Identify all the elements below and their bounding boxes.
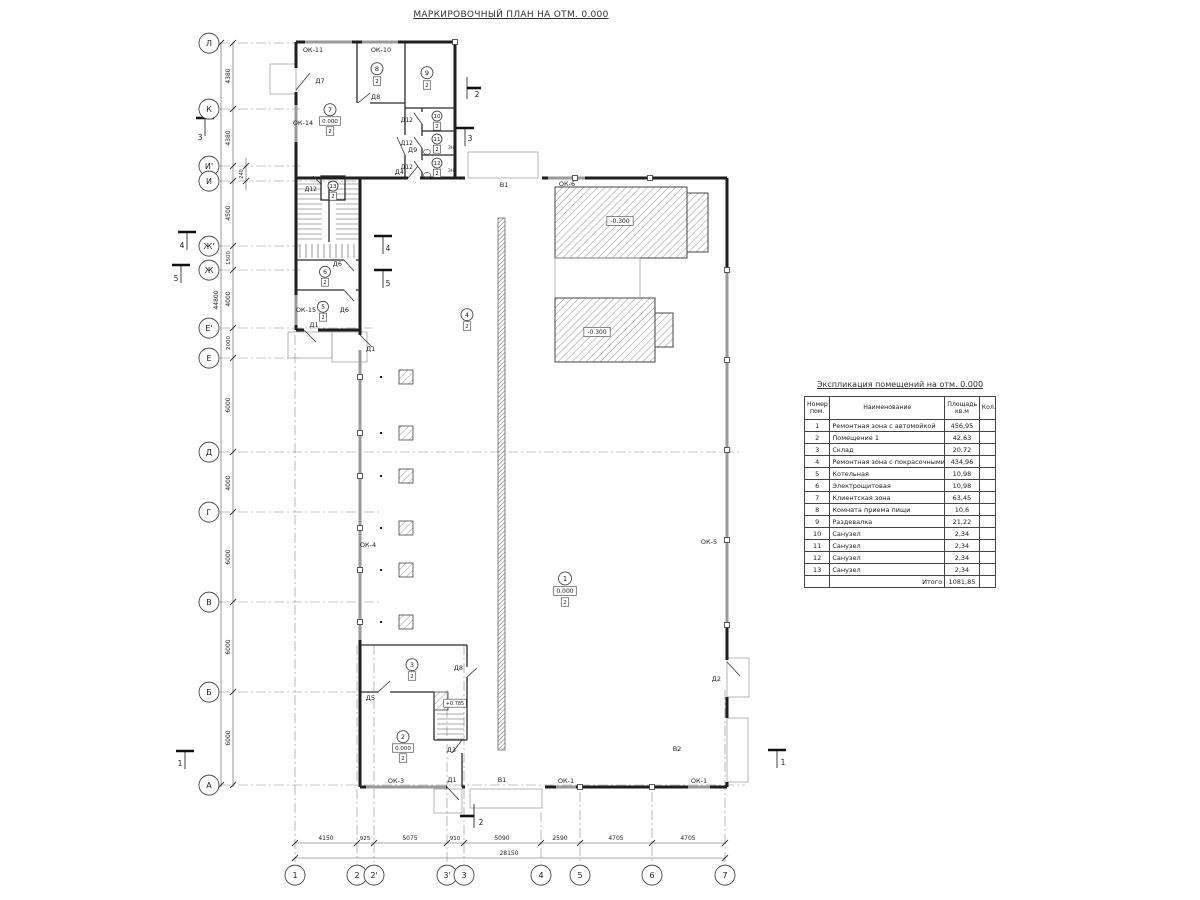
svg-text:8: 8 xyxy=(375,65,379,73)
svg-text:3: 3 xyxy=(468,134,473,143)
svg-text:3: 3 xyxy=(461,871,466,880)
dim-left: 4380 xyxy=(225,130,232,145)
room-name: Ремонтная зона с автомойкой xyxy=(830,420,945,432)
svg-text:5: 5 xyxy=(321,304,325,311)
svg-text:4: 4 xyxy=(386,244,391,253)
floor-plan-drawing: 122'3'34567ЛКИ'ИЖ'ЖЕ'ЕДГВБА4150925507591… xyxy=(0,0,1200,900)
dim-bottom: 4705 xyxy=(680,835,695,842)
window-label: ОК-1 xyxy=(558,777,574,785)
svg-text:Д8: Д8 xyxy=(454,664,463,672)
room-number: 2 xyxy=(805,432,830,444)
elevation-mark: -0.300 xyxy=(607,216,633,225)
svg-text:2: 2 xyxy=(323,280,326,286)
svg-text:5: 5 xyxy=(577,871,582,880)
section-flag-4: 4 xyxy=(180,241,185,250)
finish-tag: 2 xyxy=(433,145,440,153)
elevation-mark: 0.000 xyxy=(554,586,577,595)
dim-bottom: 925 xyxy=(360,836,371,842)
gate-label: В1 xyxy=(500,181,509,189)
svg-text:В1: В1 xyxy=(498,776,507,784)
room-number: 10 xyxy=(805,528,830,540)
svg-text:7: 7 xyxy=(328,106,332,114)
svg-text:Д: Д xyxy=(206,448,212,457)
svg-text:Д1: Д1 xyxy=(447,776,456,784)
svg-text:И': И' xyxy=(205,162,213,171)
svg-text:6: 6 xyxy=(649,871,654,880)
finish-tag: 2 xyxy=(408,672,415,681)
finish-tag: 2 xyxy=(326,127,333,135)
finish-tag: 2 xyxy=(423,81,430,90)
door-label: Д12 xyxy=(401,164,414,171)
room-qty xyxy=(979,552,995,564)
svg-text:2: 2 xyxy=(331,194,334,200)
axis-bubble-Zh: Ж xyxy=(199,260,219,280)
svg-text:2: 2 xyxy=(435,147,438,153)
room-qty xyxy=(979,528,995,540)
room-qty xyxy=(979,492,995,504)
schedule-header-row: Номерпом. Наименование Площадькв.м Кол. xyxy=(805,397,996,420)
svg-text:ОК-10: ОК-10 xyxy=(371,46,391,54)
svg-text:В1: В1 xyxy=(500,181,509,189)
svg-text:4705: 4705 xyxy=(608,835,623,842)
axis-bubble-5: 5 xyxy=(570,865,590,885)
room-qty xyxy=(979,420,995,432)
room-area: 10,98 xyxy=(945,480,980,492)
svg-text:Д12: Д12 xyxy=(401,164,414,171)
svg-text:0.000: 0.000 xyxy=(556,588,573,595)
svg-text:2: 2 xyxy=(354,871,359,880)
svg-text:1: 1 xyxy=(781,758,786,767)
vent-mark: ЗН xyxy=(448,168,454,174)
room-area: 10,6 xyxy=(945,504,980,516)
room-marker-3: 3 xyxy=(406,659,418,671)
room-number: 8 xyxy=(805,504,830,516)
svg-text:4500: 4500 xyxy=(225,205,232,220)
room-qty xyxy=(979,564,995,576)
dim-left: 4000 xyxy=(225,291,232,306)
dim-bottom: 4150 xyxy=(318,835,333,842)
svg-text:2: 2 xyxy=(425,83,429,89)
room-name: Раздевалка xyxy=(830,516,945,528)
elevation-mark: -0.300 xyxy=(584,327,610,336)
svg-text:Д12: Д12 xyxy=(401,140,414,147)
window-label: ОК-15 xyxy=(296,306,316,314)
room-marker-10: 10 xyxy=(432,111,442,121)
svg-text:0.000: 0.000 xyxy=(322,119,338,125)
svg-text:-0.300: -0.300 xyxy=(587,329,607,336)
room-area: 10,98 xyxy=(945,468,980,480)
room-area: 2,34 xyxy=(945,564,980,576)
axis-bubble-A: А xyxy=(199,775,219,795)
svg-text:ОК-1: ОК-1 xyxy=(691,777,707,785)
schedule-title: Экспликация помещений на отм. 0.000 xyxy=(804,380,996,389)
plan-labels: 122'3'34567ЛКИ'ИЖ'ЖЕ'ЕДГВБА4150925507591… xyxy=(174,33,786,885)
svg-text:Д6: Д6 xyxy=(340,306,349,314)
room-name: Помещение 1 xyxy=(830,432,945,444)
svg-text:4705: 4705 xyxy=(680,835,695,842)
total-value: 1081,85 xyxy=(945,576,980,588)
axis-bubble-K: К xyxy=(199,99,219,119)
elevation-mark: 0.000 xyxy=(319,117,340,126)
svg-text:В: В xyxy=(206,598,212,607)
svg-text:4150: 4150 xyxy=(318,835,333,842)
door-label: Д8 xyxy=(454,664,463,672)
room-area: 20,72 xyxy=(945,444,980,456)
svg-text:Ж: Ж xyxy=(205,266,214,275)
schedule-row: 7 Клиентская зона 63,45 xyxy=(805,492,996,504)
svg-text:Д9: Д9 xyxy=(408,146,417,154)
door-label: Д1 xyxy=(366,345,375,353)
window-label: ОК-14 xyxy=(293,119,313,127)
svg-text:-0.300: -0.300 xyxy=(610,218,630,225)
door-label: Д7 xyxy=(315,77,324,85)
col-header-qty: Кол. xyxy=(979,397,995,420)
schedule-row: 4 Ремонтная зона с покрасочными камерами… xyxy=(805,456,996,468)
room-qty xyxy=(979,432,995,444)
axis-bubble-I: И xyxy=(199,171,219,191)
svg-text:Д12: Д12 xyxy=(305,186,318,193)
svg-text:ОК-14: ОК-14 xyxy=(293,119,313,127)
room-qty xyxy=(979,444,995,456)
schedule-table: Номерпом. Наименование Площадькв.м Кол. … xyxy=(804,396,996,588)
svg-text:3: 3 xyxy=(198,133,203,142)
hatched-partition xyxy=(498,218,505,750)
room-marker-6: 6 xyxy=(320,266,331,277)
room-number: 5 xyxy=(805,468,830,480)
elevation-mark: 0.000 xyxy=(392,744,413,753)
svg-text:10: 10 xyxy=(434,114,441,120)
svg-text:5075: 5075 xyxy=(402,835,417,842)
svg-text:2: 2 xyxy=(375,79,379,85)
svg-text:1: 1 xyxy=(292,871,297,880)
room-area: 2,34 xyxy=(945,540,980,552)
axis-bubble-B: Б xyxy=(199,682,219,702)
svg-text:6000: 6000 xyxy=(225,730,232,745)
svg-text:Л: Л xyxy=(206,39,212,48)
room-name: Санузел xyxy=(830,552,945,564)
finish-tag: 2 xyxy=(463,322,470,331)
room-number: 3 xyxy=(805,444,830,456)
window-label: ОК-5 xyxy=(701,538,717,546)
finish-tag: 2 xyxy=(321,278,328,286)
svg-text:Д5: Д5 xyxy=(366,694,375,702)
svg-text:5090: 5090 xyxy=(494,835,509,842)
room-qty xyxy=(979,540,995,552)
dim-left: 6000 xyxy=(225,397,232,412)
room-marker-1: 1 xyxy=(559,572,572,585)
svg-text:К: К xyxy=(206,105,212,114)
svg-text:Д6: Д6 xyxy=(333,260,342,268)
section-flag-2: 2 xyxy=(479,818,484,827)
door-label: Д6 xyxy=(340,306,349,314)
col-header-area: Площадькв.м xyxy=(945,397,980,420)
dim-bottom: 5090 xyxy=(494,835,509,842)
window-label: ОК-10 xyxy=(371,46,391,54)
svg-text:4000: 4000 xyxy=(225,475,232,490)
room-area: 434,96 xyxy=(945,456,980,468)
section-flag-1: 1 xyxy=(178,759,183,768)
room-area: 42,63 xyxy=(945,432,980,444)
room-qty xyxy=(979,516,995,528)
schedule-row: 9 Раздевалка 21,22 xyxy=(805,516,996,528)
door-label: Д6 xyxy=(333,260,342,268)
room-number: 9 xyxy=(805,516,830,528)
room-number: 7 xyxy=(805,492,830,504)
door-leaves xyxy=(296,73,740,800)
svg-text:Д7: Д7 xyxy=(315,77,324,85)
room-schedule: Экспликация помещений на отм. 0.000 Номе… xyxy=(804,380,996,588)
svg-text:Д2: Д2 xyxy=(712,675,721,683)
axis-bubble-2p: 2' xyxy=(364,865,384,885)
svg-text:4380: 4380 xyxy=(225,68,232,83)
door-label: Д8 xyxy=(371,93,380,101)
dim-bottom: 910 xyxy=(450,836,461,842)
schedule-row: 10 Санузел 2,34 xyxy=(805,528,996,540)
svg-text:2: 2 xyxy=(410,674,414,680)
room-name: Санузел xyxy=(830,540,945,552)
window-label: ОК-6 xyxy=(559,180,575,188)
svg-text:2: 2 xyxy=(563,600,567,606)
door-label: Д12 xyxy=(305,186,318,193)
room-name: Санузел xyxy=(830,528,945,540)
svg-text:4: 4 xyxy=(538,871,543,880)
section-flag-3: 3 xyxy=(468,134,473,143)
room-qty xyxy=(979,456,995,468)
room-marker-4: 4 xyxy=(461,309,473,321)
room-number: 4 xyxy=(805,456,830,468)
dim-left: 4500 xyxy=(225,205,232,220)
vent-mark: ЗН xyxy=(448,145,454,151)
svg-text:ОК-5: ОК-5 xyxy=(701,538,717,546)
room-area: 63,45 xyxy=(945,492,980,504)
svg-text:2: 2 xyxy=(321,315,324,321)
finish-tag: 2 xyxy=(329,192,336,200)
axis-bubble-Zhp: Ж' xyxy=(199,236,219,256)
dim-left: 6000 xyxy=(225,549,232,564)
schedule-row: 12 Санузел 2,34 xyxy=(805,552,996,564)
svg-text:0.000: 0.000 xyxy=(395,746,411,752)
room-area: 2,34 xyxy=(945,552,980,564)
dim-left: 1500 xyxy=(226,251,232,265)
svg-text:6000: 6000 xyxy=(225,397,232,412)
axis-bubble-G: Г xyxy=(199,502,219,522)
door-label: Д12 xyxy=(401,117,414,124)
dim-left: 6000 xyxy=(225,639,232,654)
svg-text:ЗН: ЗН xyxy=(448,168,454,174)
door-label: Д1 xyxy=(309,321,318,329)
svg-text:13: 13 xyxy=(330,184,337,190)
axis-bubble-Ep: Е' xyxy=(199,318,219,338)
svg-text:4000: 4000 xyxy=(225,291,232,306)
gate-label: В1 xyxy=(498,776,507,784)
svg-text:Е: Е xyxy=(206,354,211,363)
svg-text:3': 3' xyxy=(443,871,450,880)
finish-tag: 2 xyxy=(433,169,440,177)
svg-text:Д8: Д8 xyxy=(371,93,380,101)
svg-text:ОК-6: ОК-6 xyxy=(559,180,575,188)
schedule-row: 2 Помещение 1 42,63 xyxy=(805,432,996,444)
schedule-row: 3 Склад 20,72 xyxy=(805,444,996,456)
room-number: 13 xyxy=(805,564,830,576)
svg-text:5: 5 xyxy=(174,274,179,283)
paint-chambers xyxy=(555,187,708,362)
svg-text:Б: Б xyxy=(206,688,212,697)
axis-bubble-D: Д xyxy=(199,442,219,462)
section-flags xyxy=(172,77,786,828)
room-name: Склад xyxy=(830,444,945,456)
svg-text:ОК-3: ОК-3 xyxy=(388,777,404,785)
svg-text:Д1: Д1 xyxy=(309,321,318,329)
svg-text:5: 5 xyxy=(386,279,391,288)
window-label: ОК-1 xyxy=(691,777,707,785)
door-label: Д5 xyxy=(366,694,375,702)
window-label: ОК-3 xyxy=(388,777,404,785)
svg-text:2: 2 xyxy=(401,733,405,741)
svg-text:+0.785: +0.785 xyxy=(446,701,465,707)
schedule-row: 11 Санузел 2,34 xyxy=(805,540,996,552)
col-header-name: Наименование xyxy=(830,397,945,420)
svg-text:2: 2 xyxy=(328,129,332,135)
dim-bottom: 4705 xyxy=(608,835,623,842)
room-marker-2: 2 xyxy=(397,731,409,743)
svg-text:6000: 6000 xyxy=(225,639,232,654)
axis-bubble-V: В xyxy=(199,592,219,612)
dim-left: 4000 xyxy=(225,475,232,490)
axis-bubble-4: 4 xyxy=(531,865,551,885)
svg-text:9: 9 xyxy=(425,69,429,77)
room-area: 2,34 xyxy=(945,528,980,540)
room-number: 12 xyxy=(805,552,830,564)
svg-text:7: 7 xyxy=(722,871,727,880)
svg-text:6000: 6000 xyxy=(225,549,232,564)
svg-text:12: 12 xyxy=(434,161,441,167)
schedule-row: 13 Санузел 2,34 xyxy=(805,564,996,576)
svg-text:Д12: Д12 xyxy=(401,117,414,124)
dim-left: 2000 xyxy=(226,336,232,350)
window-label: ОК-11 xyxy=(303,46,323,54)
svg-text:240: 240 xyxy=(239,169,245,179)
grid-axes xyxy=(220,43,745,862)
section-flag-3: 3 xyxy=(198,133,203,142)
dim-left-total: 44800 xyxy=(213,290,220,309)
svg-text:910: 910 xyxy=(450,836,461,842)
room-marker-13: 13 xyxy=(328,181,338,191)
svg-text:3: 3 xyxy=(410,661,414,669)
svg-text:Д3: Д3 xyxy=(447,746,456,754)
room-area: 21,22 xyxy=(945,516,980,528)
svg-text:4: 4 xyxy=(180,241,185,250)
total-label: Итого xyxy=(830,576,945,588)
room-marker-9: 9 xyxy=(421,67,433,79)
svg-text:2: 2 xyxy=(435,171,438,177)
svg-text:2': 2' xyxy=(370,871,377,880)
room-area: 456,95 xyxy=(945,420,980,432)
finish-tag: 2 xyxy=(561,598,568,607)
axis-bubble-6: 6 xyxy=(642,865,662,885)
room-marker-8: 8 xyxy=(371,63,383,75)
dim-bottom: 2590 xyxy=(552,835,567,842)
room-number: 1 xyxy=(805,420,830,432)
schedule-row: 1 Ремонтная зона с автомойкой 456,95 xyxy=(805,420,996,432)
axis-bubble-1: 1 xyxy=(285,865,305,885)
svg-text:28150: 28150 xyxy=(499,850,518,857)
schedule-row: 5 Котельная 10,98 xyxy=(805,468,996,480)
svg-text:ЗН: ЗН xyxy=(448,145,454,151)
dim-bottom: 5075 xyxy=(402,835,417,842)
svg-text:2000: 2000 xyxy=(226,336,232,350)
door-label: Д9 xyxy=(408,146,417,154)
room-name: Клиентская зона xyxy=(830,492,945,504)
svg-text:44800: 44800 xyxy=(213,290,220,309)
room-name: Котельная xyxy=(830,468,945,480)
room-marker-7: 7 xyxy=(324,104,336,116)
window-label: ОК-4 xyxy=(360,541,376,549)
room-name: Комната приема пищи xyxy=(830,504,945,516)
svg-text:ОК-1: ОК-1 xyxy=(558,777,574,785)
columns xyxy=(380,370,413,629)
svg-text:2: 2 xyxy=(435,124,438,130)
room-name: Электрощитовая xyxy=(830,480,945,492)
section-flag-5: 5 xyxy=(386,279,391,288)
section-flag-4: 4 xyxy=(386,244,391,253)
finish-tag: 2 xyxy=(319,313,326,321)
room-qty xyxy=(979,468,995,480)
finish-tag: 2 xyxy=(433,122,440,130)
svg-text:1: 1 xyxy=(178,759,183,768)
door-label: Д3 xyxy=(447,746,456,754)
schedule-row: 6 Электрощитовая 10,98 xyxy=(805,480,996,492)
room-number: 6 xyxy=(805,480,830,492)
door-label: Д2 xyxy=(712,675,721,683)
gate-label: В2 xyxy=(673,745,682,753)
svg-text:Ж': Ж' xyxy=(204,242,215,251)
section-flag-2: 2 xyxy=(475,90,480,99)
svg-text:1500: 1500 xyxy=(226,251,232,265)
room-marker-12: 12 xyxy=(432,158,442,168)
svg-text:2: 2 xyxy=(465,324,469,330)
svg-text:6: 6 xyxy=(323,269,327,276)
schedule-total-row: Итого 1081,85 xyxy=(805,576,996,588)
interior-walls xyxy=(296,42,467,787)
svg-text:И: И xyxy=(206,177,212,186)
room-qty xyxy=(979,480,995,492)
svg-text:11: 11 xyxy=(434,137,441,143)
axis-bubble-3: 3 xyxy=(454,865,474,885)
svg-text:В2: В2 xyxy=(673,745,682,753)
svg-text:4: 4 xyxy=(465,311,469,319)
svg-text:2: 2 xyxy=(401,756,405,762)
svg-text:4380: 4380 xyxy=(225,130,232,145)
svg-text:2: 2 xyxy=(475,90,480,99)
room-name: Ремонтная зона с покрасочными камерами xyxy=(830,456,945,468)
svg-text:ОК-11: ОК-11 xyxy=(303,46,323,54)
axis-bubble-L: Л xyxy=(199,33,219,53)
section-flag-5: 5 xyxy=(174,274,179,283)
finish-tag: 2 xyxy=(399,754,406,763)
room-marker-11: 11 xyxy=(432,134,442,144)
room-qty xyxy=(979,504,995,516)
room-number: 11 xyxy=(805,540,830,552)
svg-text:Г: Г xyxy=(207,508,212,517)
dim-left: 4380 xyxy=(225,68,232,83)
schedule-row: 8 Комната приема пищи 10,6 xyxy=(805,504,996,516)
finish-tag: 2 xyxy=(373,77,380,86)
svg-text:Е': Е' xyxy=(205,324,212,333)
svg-text:2: 2 xyxy=(479,818,484,827)
svg-text:2590: 2590 xyxy=(552,835,567,842)
dim-bottom-total: 28150 xyxy=(499,850,518,857)
axis-bubble-7: 7 xyxy=(715,865,735,885)
